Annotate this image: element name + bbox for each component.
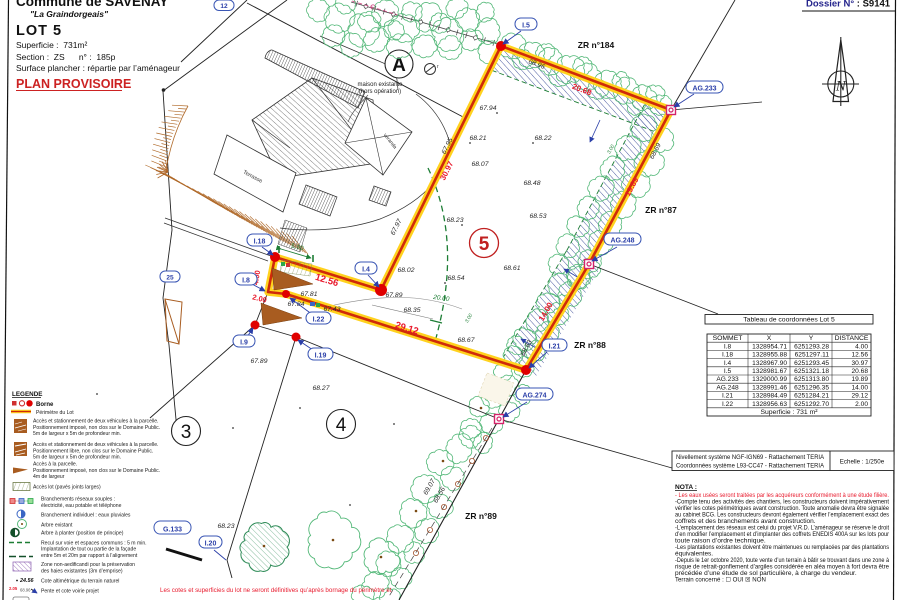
svg-text:68.27: 68.27	[312, 385, 329, 392]
svg-text:Section : ZS n° : 185p: Section : ZS n° : 185p	[16, 52, 116, 62]
svg-text:ZR n°88: ZR n°88	[574, 340, 606, 350]
svg-text:2.00: 2.00	[855, 401, 868, 408]
svg-text:68.35: 68.35	[403, 307, 420, 314]
svg-text:3: 3	[181, 422, 192, 443]
svg-text:1328955.88: 1328955.88	[752, 352, 787, 359]
svg-text:4m de largeur: 4m de largeur	[33, 474, 65, 480]
svg-text:Périmètre du Lot: Périmètre du Lot	[36, 410, 74, 416]
svg-text:68.53: 68.53	[529, 213, 546, 220]
svg-text:I.18: I.18	[722, 352, 733, 359]
svg-text:maison existante: maison existante	[357, 82, 403, 88]
svg-text:67.81: 67.81	[300, 291, 317, 298]
svg-text:I.21: I.21	[722, 393, 733, 400]
svg-text:2.05: 2.05	[9, 586, 18, 591]
svg-text:6251293.45: 6251293.45	[794, 360, 829, 367]
svg-text:1328981.67: 1328981.67	[752, 368, 787, 375]
svg-text:Surface plancher : répartie pa: Surface plancher : répartie par l’aménag…	[16, 63, 180, 73]
svg-text:6251284.21: 6251284.21	[794, 393, 829, 400]
svg-text:1328956.63: 1328956.63	[752, 401, 787, 408]
svg-text:4.00: 4.00	[855, 343, 868, 350]
svg-text:Dossier N° : S9141: Dossier N° : S9141	[806, 0, 891, 10]
svg-text:I.5: I.5	[522, 22, 530, 29]
svg-text:67.94: 67.94	[479, 105, 496, 112]
svg-text:NOTA :: NOTA :	[675, 484, 697, 491]
svg-text:1329000.99: 1329000.99	[752, 376, 787, 383]
svg-text:5: 5	[479, 234, 490, 255]
svg-text:AG.233: AG.233	[692, 85, 716, 92]
svg-text:29.12: 29.12	[851, 393, 868, 400]
svg-text:68.02: 68.02	[397, 267, 414, 274]
svg-text:"La Graindorgeais": "La Graindorgeais"	[30, 9, 109, 19]
svg-text:Implantation de tout ou partie: Implantation de tout ou partie de la faç…	[41, 547, 136, 553]
svg-text:I.5: I.5	[724, 368, 732, 375]
svg-text:68.67: 68.67	[457, 337, 474, 344]
svg-text:68.23: 68.23	[217, 523, 234, 530]
svg-text:PLAN PROVISOIRE: PLAN PROVISOIRE	[16, 77, 131, 91]
svg-text:I.9: I.9	[240, 339, 248, 346]
svg-text:Recul sur voie et espaces comm: Recul sur voie et espaces communs : 5 m …	[41, 540, 147, 546]
svg-text:1328954.71: 1328954.71	[752, 343, 787, 350]
svg-text:I.18: I.18	[254, 238, 266, 245]
svg-text:Y: Y	[809, 335, 814, 342]
svg-text:Arbre existant: Arbre existant	[41, 523, 73, 529]
svg-text:Superficie : 731m²: Superficie : 731m²	[16, 40, 88, 50]
svg-text:4: 4	[336, 415, 347, 436]
svg-text:6251313.80: 6251313.80	[794, 376, 829, 383]
svg-text:Positionnement imposé, non clo: Positionnement imposé, non clos sur le D…	[33, 425, 160, 431]
svg-text:12.56: 12.56	[851, 352, 868, 359]
svg-text:Branchements réseaux souples :: Branchements réseaux souples :	[41, 497, 115, 503]
svg-text:I.22: I.22	[313, 316, 325, 323]
svg-text:Positionnement imposé, non clo: Positionnement imposé, non clos sur le D…	[33, 468, 160, 474]
svg-text:Zone non-aedificandi pour la p: Zone non-aedificandi pour la préservatio…	[41, 562, 135, 568]
svg-text:des haies existantes (3m d’emp: des haies existantes (3m d’emprise)	[41, 568, 123, 574]
svg-text:6251292.70: 6251292.70	[794, 401, 829, 408]
svg-text:19.89: 19.89	[851, 376, 868, 383]
svg-text:LOT 5: LOT 5	[16, 23, 62, 39]
svg-text:68.22: 68.22	[534, 135, 551, 142]
svg-text:20.00: 20.00	[432, 294, 450, 303]
svg-text:25: 25	[166, 274, 174, 281]
svg-text:Commune de SAVENAY: Commune de SAVENAY	[16, 0, 168, 9]
svg-text:3.00: 3.00	[464, 313, 474, 325]
svg-text:entre 5m et 20m par rapport à: entre 5m et 20m par rapport à l’aligneme…	[41, 553, 138, 559]
svg-text:I.8: I.8	[724, 343, 732, 350]
svg-text:6251296.35: 6251296.35	[794, 384, 829, 391]
svg-text:r: r	[437, 64, 439, 70]
svg-text:Accès et stationnement de deux: Accès et stationnement de deux véhicules…	[33, 419, 158, 425]
svg-text:68.21: 68.21	[469, 135, 486, 142]
svg-text:5.00: 5.00	[290, 243, 304, 253]
svg-text:DISTANCE: DISTANCE	[835, 335, 869, 342]
svg-text:I.21: I.21	[549, 343, 561, 350]
svg-text:Borne: Borne	[36, 402, 54, 408]
svg-text:68.23: 68.23	[446, 217, 463, 224]
svg-text:AG.274: AG.274	[522, 392, 546, 399]
svg-text:I.4: I.4	[724, 360, 732, 367]
svg-text:Branchement individuel : eaux: Branchement individuel : eaux pluviales	[41, 513, 131, 519]
svg-text:N: N	[835, 79, 847, 95]
svg-text:1328991.46: 1328991.46	[752, 384, 787, 391]
svg-text:Tableau de coordonnées Lot 5: Tableau de coordonnées Lot 5	[743, 317, 835, 324]
svg-text:Nivellement système NGF-IGN69: Nivellement système NGF-IGN69 - Rattache…	[676, 454, 825, 461]
svg-text:6251321.18: 6251321.18	[794, 368, 829, 375]
svg-text:14.00: 14.00	[851, 384, 868, 391]
svg-text:67.97: 67.97	[390, 218, 404, 237]
svg-text:AG.248: AG.248	[716, 384, 739, 391]
svg-text:Arbre à planter (position de p: Arbre à planter (position de principe)	[41, 531, 124, 537]
svg-text:Pente et cote voirie projet: Pente et cote voirie projet	[41, 589, 99, 595]
svg-text:Cote altimétrique du terrain n: Cote altimétrique du terrain naturel	[41, 579, 119, 585]
svg-text:68.96: 68.96	[20, 588, 31, 593]
svg-text:AG.248: AG.248	[610, 237, 634, 244]
svg-text:30.97: 30.97	[851, 360, 868, 367]
svg-text:AG.233: AG.233	[716, 376, 739, 383]
svg-text:Terrain concerné : ☐: Terrain concerné : ☐ OUI ☒ NON	[675, 577, 766, 584]
svg-text:68.48: 68.48	[523, 180, 540, 187]
svg-text:Positionnement libre, non clos: Positionnement libre, non clos sur le Do…	[33, 448, 153, 454]
svg-text:ZR n°89: ZR n°89	[465, 511, 497, 521]
svg-text:1328967.90: 1328967.90	[752, 360, 787, 367]
svg-text:12: 12	[220, 3, 228, 10]
svg-text:67.89: 67.89	[385, 292, 402, 299]
svg-text:G.133: G.133	[163, 526, 182, 533]
svg-text:67.89: 67.89	[250, 358, 267, 365]
svg-text:Echelle : 1/250e: Echelle : 1/250e	[840, 459, 885, 466]
svg-text:SOMMET: SOMMET	[713, 335, 743, 342]
svg-text:68.07: 68.07	[471, 161, 488, 168]
svg-text:Les cotes et superficies du lo: Les cotes et superficies du lot ne seron…	[160, 587, 392, 594]
svg-text:X: X	[767, 335, 772, 342]
svg-text:ZR n°184: ZR n°184	[578, 40, 615, 50]
svg-text:Accès à la parcelle.: Accès à la parcelle.	[33, 462, 77, 468]
svg-text:24.56: 24.56	[19, 578, 34, 584]
svg-text:Superficie : 731 m²: Superficie : 731 m²	[760, 409, 818, 416]
svg-text:Coordonnées système L93-CC47: Coordonnées système L93-CC47 - Rattachem…	[676, 463, 825, 470]
svg-text:5m de largeur x 5m de profonde: 5m de largeur x 5m de profondeur min.	[33, 431, 121, 437]
svg-text:68.54: 68.54	[447, 275, 464, 282]
svg-text:ZR n°87: ZR n°87	[645, 205, 677, 215]
svg-text:Accès et stationnement de deux: Accès et stationnement de deux véhicules…	[33, 442, 158, 448]
svg-text:électricité, eau potable et té: électricité, eau potable et téléphone	[41, 503, 122, 509]
svg-text:1328984.49: 1328984.49	[752, 393, 787, 400]
svg-text:I.22: I.22	[722, 401, 733, 408]
svg-text:I.4: I.4	[362, 266, 370, 273]
svg-text:I.20: I.20	[205, 540, 217, 547]
svg-text:I.19: I.19	[315, 352, 327, 359]
svg-text:LEGENDE: LEGENDE	[12, 391, 42, 398]
svg-text:(hors opération): (hors opération)	[359, 89, 401, 95]
svg-text:20.68: 20.68	[851, 368, 868, 375]
svg-text:6251297.11: 6251297.11	[795, 352, 830, 359]
svg-text:68.61: 68.61	[503, 265, 520, 272]
svg-text:5m de largeur x 5m de profonde: 5m de largeur x 5m de profondeur min.	[33, 455, 121, 461]
svg-text:6251293.28: 6251293.28	[794, 343, 829, 350]
svg-text:I.8: I.8	[242, 277, 250, 284]
svg-text:69.07: 69.07	[422, 478, 437, 496]
svg-text:Accès lot (pavés joints larges: Accès lot (pavés joints larges)	[33, 485, 101, 491]
